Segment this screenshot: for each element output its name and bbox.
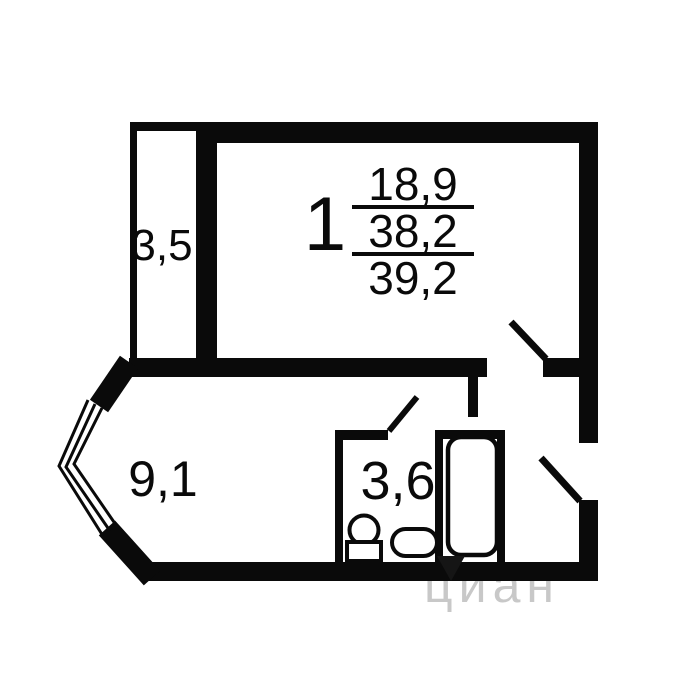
wall-top: [196, 122, 598, 143]
total-area-with-balcony-value: 39,2: [352, 256, 474, 299]
bathtub: [448, 437, 497, 555]
living-area-value: 18,9: [352, 162, 474, 209]
wall-bathroom-top: [335, 430, 388, 440]
wall-balcony-top: [130, 122, 196, 131]
bathroom-area-label: 3,6: [348, 454, 448, 508]
balcony-area-label: 3,5: [122, 224, 202, 268]
hallway-area-label: 9,1: [113, 454, 213, 504]
toilet-tank: [347, 542, 381, 561]
bathroom-door-leaf: [389, 397, 417, 431]
location-pin-icon: [437, 556, 465, 581]
wall-hall-stub: [468, 377, 478, 417]
wall-bay-upper: [99, 362, 129, 406]
wall-bay-lower: [107, 528, 152, 578]
wall-mid-stub: [543, 358, 583, 377]
floor-plan-svg: [0, 0, 700, 700]
wall-mid: [129, 358, 487, 377]
entrance-door-leaf: [541, 458, 580, 501]
wall-bottom: [145, 562, 598, 581]
total-area-value: 38,2: [352, 209, 474, 256]
floor-plan: циан: [0, 0, 700, 700]
sink: [392, 529, 437, 556]
wall-bathroom-left: [335, 430, 343, 562]
area-stack: 18,9 38,2 39,2: [352, 162, 474, 299]
wall-right-upper: [579, 122, 598, 443]
room-door-leaf: [511, 322, 546, 359]
